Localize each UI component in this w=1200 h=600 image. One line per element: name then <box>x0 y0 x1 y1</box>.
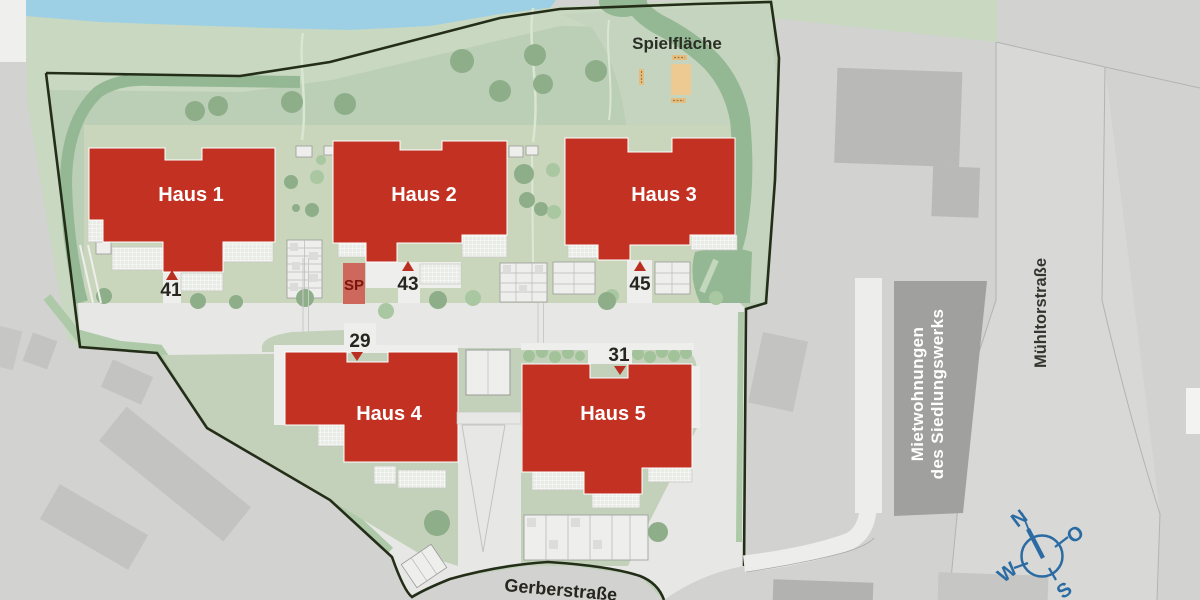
svg-text:43: 43 <box>397 274 418 295</box>
svg-text:des Siedlungswerks: des Siedlungswerks <box>928 309 947 480</box>
svg-text:45: 45 <box>629 274 651 295</box>
svg-text:29: 29 <box>349 331 370 352</box>
svg-text:Mühltorstraße: Mühltorstraße <box>1032 258 1050 368</box>
svg-text:Haus 4: Haus 4 <box>356 403 422 425</box>
svg-text:Haus 2: Haus 2 <box>391 184 457 206</box>
svg-text:Haus 5: Haus 5 <box>580 403 646 425</box>
svg-text:Mietwohnungen: Mietwohnungen <box>908 327 927 462</box>
svg-text:Spielfläche: Spielfläche <box>632 34 722 53</box>
svg-text:Haus 3: Haus 3 <box>631 184 697 206</box>
svg-text:41: 41 <box>160 280 182 301</box>
svg-text:31: 31 <box>608 345 630 366</box>
svg-text:SP: SP <box>344 277 364 294</box>
svg-text:Haus 1: Haus 1 <box>158 184 224 206</box>
